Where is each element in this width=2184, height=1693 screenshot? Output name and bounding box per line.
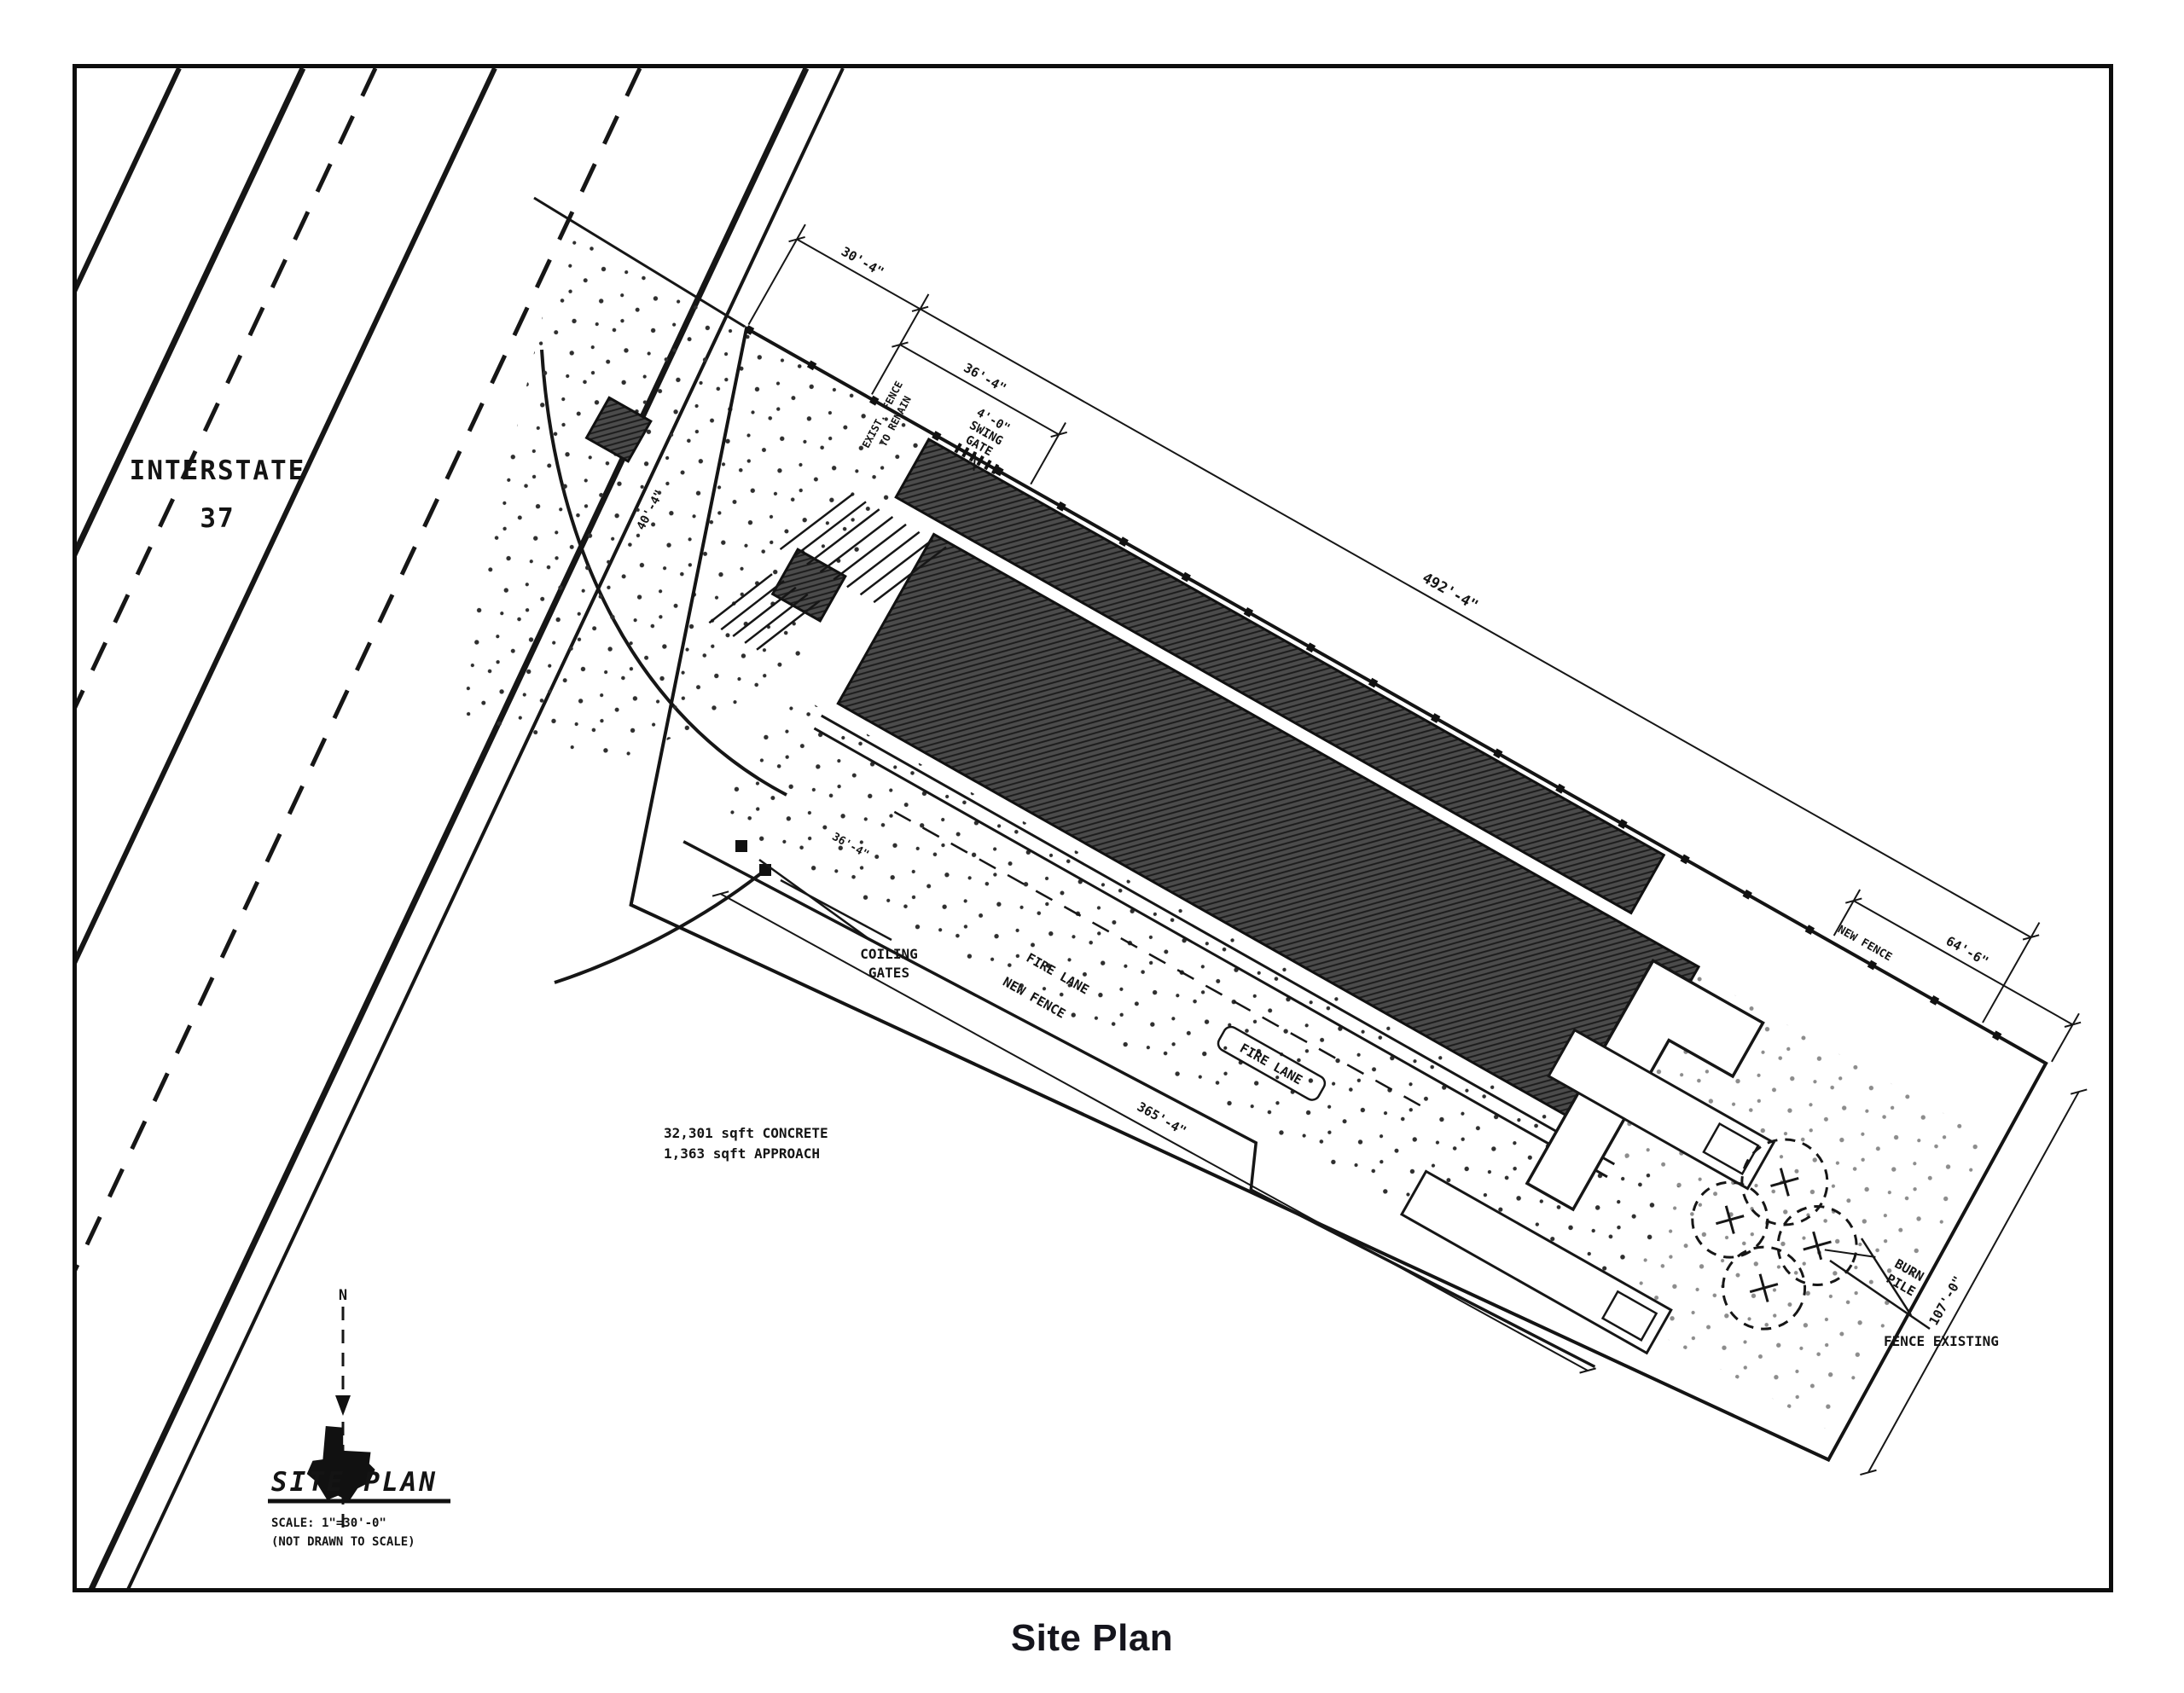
- figure-caption: Site Plan: [0, 1617, 2184, 1660]
- dim-30-4-label: 30'-4": [839, 244, 886, 280]
- title-block-scale1: SCALE: 1"=30'-0": [271, 1516, 386, 1530]
- north-arrow-head: [335, 1395, 351, 1416]
- fence-existing-label: FENCE EXISTING: [1884, 1333, 1999, 1349]
- north-label: N: [339, 1287, 347, 1304]
- concrete-area-note-line1: 32,301 sqft CONCRETE: [664, 1125, 828, 1141]
- interstate-label: INTERSTATE: [130, 455, 306, 486]
- site-plan-drawing: INTERSTATE 37 COILING GATES 32,301 sqft …: [77, 68, 2109, 1588]
- new-fence-label-b: NEW FENCE: [1835, 924, 1894, 965]
- site-rotated-group: FIRE LANE FIRE LANE NEW FENCE: [289, 116, 2109, 1575]
- dim-64-6-label: 64'-6": [1943, 933, 1991, 969]
- interstate-number: 37: [200, 503, 235, 534]
- interstate-highway-lines: [77, 68, 843, 1588]
- title-block-scale2: (NOT DRAWN TO SCALE): [271, 1535, 415, 1549]
- dim-107-0-label: 107'-0": [1926, 1273, 1966, 1328]
- dim-64-6-lines: [1827, 887, 2084, 1065]
- concrete-area-note-line2: 1,363 sqft APPROACH: [664, 1145, 820, 1162]
- title-block-title: SITE PLAN: [271, 1467, 438, 1498]
- scanned-document-page: INTERSTATE 37 COILING GATES 32,301 sqft …: [0, 0, 2184, 1693]
- drawing-frame: INTERSTATE 37 COILING GATES 32,301 sqft …: [73, 64, 2113, 1592]
- dim-36-4-label: 36'-4": [961, 360, 1009, 396]
